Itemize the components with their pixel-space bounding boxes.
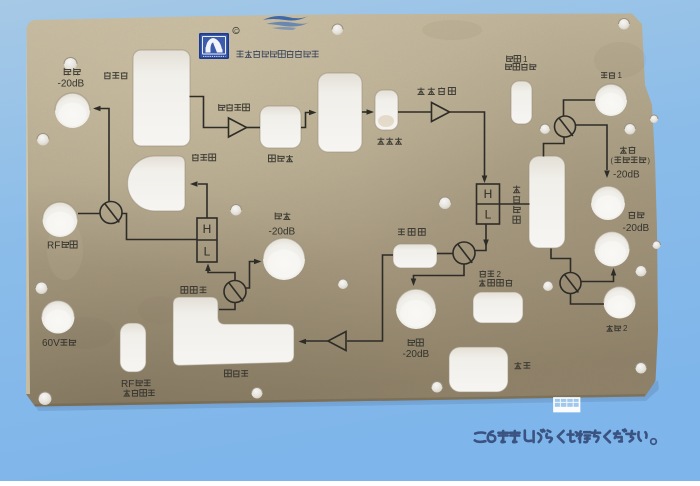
svg-text:RF: RF (47, 241, 60, 252)
svg-text:-20dB: -20dB (403, 349, 430, 360)
svg-text:-20dB: -20dB (58, 79, 85, 90)
svg-text:60V: 60V (42, 338, 60, 349)
svg-text:H: H (484, 187, 493, 201)
svg-text:-20dB: -20dB (269, 227, 296, 238)
svg-text:1: 1 (523, 55, 528, 64)
svg-text:1: 1 (618, 71, 623, 80)
svg-text:H: H (203, 222, 212, 236)
svg-text:-20dB: -20dB (613, 170, 640, 181)
svg-text:C: C (234, 29, 238, 35)
svg-text:2: 2 (623, 324, 628, 333)
svg-text:2: 2 (497, 270, 502, 279)
svg-text:RF: RF (121, 379, 134, 390)
svg-text:L: L (485, 208, 492, 222)
svg-text:L: L (204, 245, 211, 259)
svg-text:-20dB: -20dB (623, 223, 650, 234)
